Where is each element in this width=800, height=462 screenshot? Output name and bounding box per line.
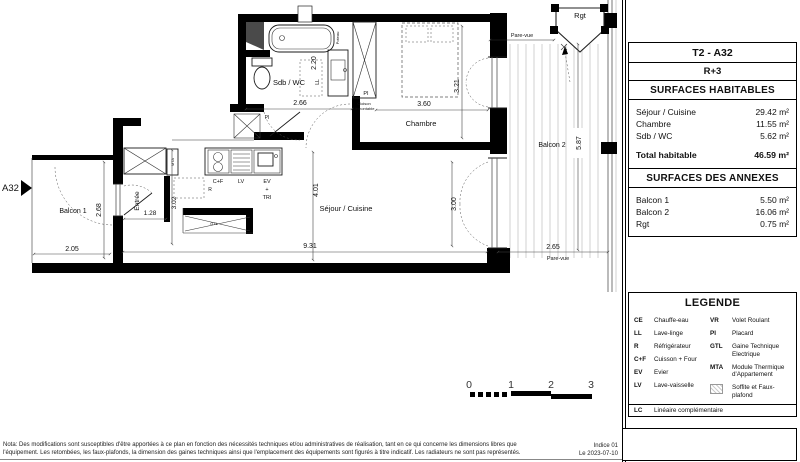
revision-date: Le 2023-07-10 [548,450,618,458]
scale-tick-2: 2 [548,379,554,391]
pare-vue-top-label: Pare-vue [511,33,533,39]
balcony1: Balcon 1 2.05 2.68 [32,158,110,263]
legend-columns: CE Chauffe-eau LL Lave-linge R Réfrigéra… [634,317,794,400]
room-area: 5.62 m² [760,130,789,142]
total-label: Total habitable [636,149,697,162]
bottom-right-box [622,428,797,461]
apartment-id-label: A32 [2,183,19,194]
bedroom-closet-label: PI [363,91,369,97]
gtl-label: GTL [210,221,219,226]
legend-label: Chauffe-eau [654,317,689,325]
balcon1-height-dim: 2.68 [96,203,103,217]
scale-tick-3: 3 [588,379,594,391]
balcon1-width-dim: 2.05 [65,246,79,253]
legend-label: Volet Roulant [732,317,769,325]
cloison-label-2: démontable [354,106,376,111]
legend-lc-row: LC Linéaire complémentaire [629,404,796,415]
legend-item: EV Evier [634,369,710,377]
legend-label: Evier [654,369,668,377]
title-block: T2 - A32 R+3 SURFACES HABITABLES Séjour … [628,42,797,237]
panel-frame-line-1 [622,0,623,462]
revision-index: Indice 01 [548,442,618,450]
balcon1-label: Balcon 1 [59,208,86,215]
table-row: Rgt 0.75 m² [636,218,789,230]
floor-plan-drawing: Rgt Pare-vue 2.65 Pare-vue Balcon 1 2.05… [0,0,625,435]
poteau-label: Poteau [335,32,340,45]
sdb-width-dim: 2.66 [293,100,307,107]
chambre-label: Chambre [406,119,437,128]
sejour-height-dim: 4.01 [313,183,320,197]
scale-tick-1: 1 [508,379,514,391]
legend-title: LEGENDE [629,297,796,309]
balcon2-label: Balcon 2 [538,142,565,149]
entree-label: Entrée [134,191,141,211]
sejour-width-dim: 9.31 [303,243,317,250]
fridge-label: R [208,187,212,193]
room-label: Séjour / Cuisine [636,106,696,118]
sejour-label: Séjour / Cuisine [320,204,373,213]
annex-area: 0.75 m² [760,218,789,230]
legend-label: Placard [732,330,753,338]
legend-item: PI Placard [710,330,794,338]
legend-abbr: EV [634,369,654,377]
sdb-height-dim: 2.20 [311,56,318,70]
habitable-table: Séjour / Cuisine 29.42 m² Chambre 11.55 … [629,100,796,169]
legend-item: CE Chauffe-eau [634,317,710,325]
legend-abbr: VR [710,317,732,325]
sejour-door-dim: 3.00 [451,197,458,211]
unit-title: T2 - A32 [629,43,796,63]
sink-plus-label: + [265,187,268,193]
annex-label: Balcon 2 [636,206,669,218]
mta-label: MTA [170,158,175,166]
table-row: Balcon 1 5.50 m² [636,194,789,206]
floor-level: R+3 [629,63,796,81]
soffite-hatch [246,22,264,50]
legend-item: GTL Gaine Technique Electrique [710,343,794,358]
legend-abbr: CE [634,317,654,325]
annex-area: 5.50 m² [760,194,789,206]
scale-tick-0: 0 [466,379,472,391]
balcon2-width-dim: 2.65 [546,244,560,251]
balcon2-height-dim: 5.87 [576,136,583,150]
table-row: Chambre 11.55 m² [636,118,789,130]
legend-label: Linéaire complémentaire [654,407,723,415]
pare-vue-bottom-label: Pare-vue [547,256,569,262]
gtl-closet: GTL [183,208,253,234]
tri-label: TRI [263,195,272,201]
legend-item: LL Lave-linge [634,330,710,338]
apartment-marker: A32 [2,180,32,196]
legend-item: VR Volet Roulant [710,317,794,325]
annex-label: Balcon 1 [636,194,669,206]
note-line-2: l'équipement. Les retombées, les faux-pl… [3,449,555,457]
walls [32,6,617,273]
kitchen: C+F R LV EV + TRI [174,148,282,201]
legend-abbr: C+F [634,356,654,364]
legend-label: Gaine Technique Electrique [732,343,794,358]
rgt-storage: Rgt [550,4,609,82]
floor-plan-sheet: { "title_block": { "unit": "T2 - A32", "… [0,0,800,462]
rgt-label: Rgt [574,11,587,20]
legend-label: Réfrigérateur [654,343,691,351]
cooktop-label: C+F [213,179,224,185]
legend-label: Cuisson + Four [654,356,697,364]
legend-abbr: LL [634,330,654,338]
annexes-header: SURFACES DES ANNEXES [629,169,796,188]
bedroom: PI Cloison démontable Chambre 3.60 3.21 [306,22,488,148]
chambre-height-dim: 3.21 [454,79,461,93]
revision-block: Indice 01 Le 2023-07-10 [548,442,618,458]
legend-item: C+F Cuisson + Four [634,356,710,364]
legend-label: Module Thermique d'Appartement [732,364,794,379]
washer-label: LL [315,79,321,85]
entrance-arrow-icon [21,180,32,196]
legend-abbr: R [634,343,654,351]
dishwasher-label: LV [238,179,245,185]
room-area: 29.42 m² [755,106,789,118]
note-line-1: Nota: Des modifications sont susceptible… [3,441,555,449]
habitable-header: SURFACES HABITABLES [629,81,796,100]
sink-label: EV [263,179,271,185]
balcony2-labels: Balcon 2 5.87 [538,44,584,250]
poteau-column [298,6,312,22]
annexes-table: Balcon 1 5.50 m² Balcon 2 16.06 m² Rgt 0… [629,188,796,236]
sheet-bottom-line [0,459,622,460]
legend-item: LV Lave-vaisselle [634,382,710,390]
legend-label: Lave-linge [654,330,683,338]
legend-box: LEGENDE CE Chauffe-eau LL Lave-linge R R… [628,292,797,417]
legend-left-column: CE Chauffe-eau LL Lave-linge R Réfrigéra… [634,317,710,400]
soffite-swatch-icon [710,384,723,394]
entree-width-dim: 1.28 [144,210,157,217]
total-area: 46.59 m² [754,149,789,162]
legend-abbr: LV [634,382,654,390]
legend-abbr: GTL [710,343,732,358]
panel-frame-line-2 [625,0,626,462]
legend-abbr: LC [634,407,654,415]
table-row: Séjour / Cuisine 29.42 m² [636,106,789,118]
annex-area: 16.06 m² [755,206,789,218]
legend-item: Soffite et Faux-plafond [710,384,794,399]
legend-abbr: PI [710,330,732,338]
legend-label: Soffite et Faux-plafond [732,384,794,399]
chambre-width-dim: 3.60 [417,101,431,108]
table-row: Balcon 2 16.06 m² [636,206,789,218]
scale-bar: 0 1 2 3 [466,379,594,399]
room-area: 11.55 m² [756,118,789,130]
table-row: Sdb / WC 5.62 m² [636,130,789,142]
sdb-label: Sdb / WC [273,78,306,87]
room-label: Chambre [636,118,671,130]
total-row: Total habitable 46.59 m² [636,149,789,162]
legend-label: Lave-vaisselle [654,382,694,390]
notes-block: Nota: Des modifications sont susceptible… [3,441,555,457]
legend-item: MTA Module Thermique d'Appartement [710,364,794,379]
room-label: Sdb / WC [636,130,672,142]
legend-abbr: MTA [710,364,732,379]
legend-right-column: VR Volet Roulant PI Placard GTL Gaine Te… [710,317,794,400]
legend-item: R Réfrigérateur [634,343,710,351]
annex-label: Rgt [636,218,649,230]
